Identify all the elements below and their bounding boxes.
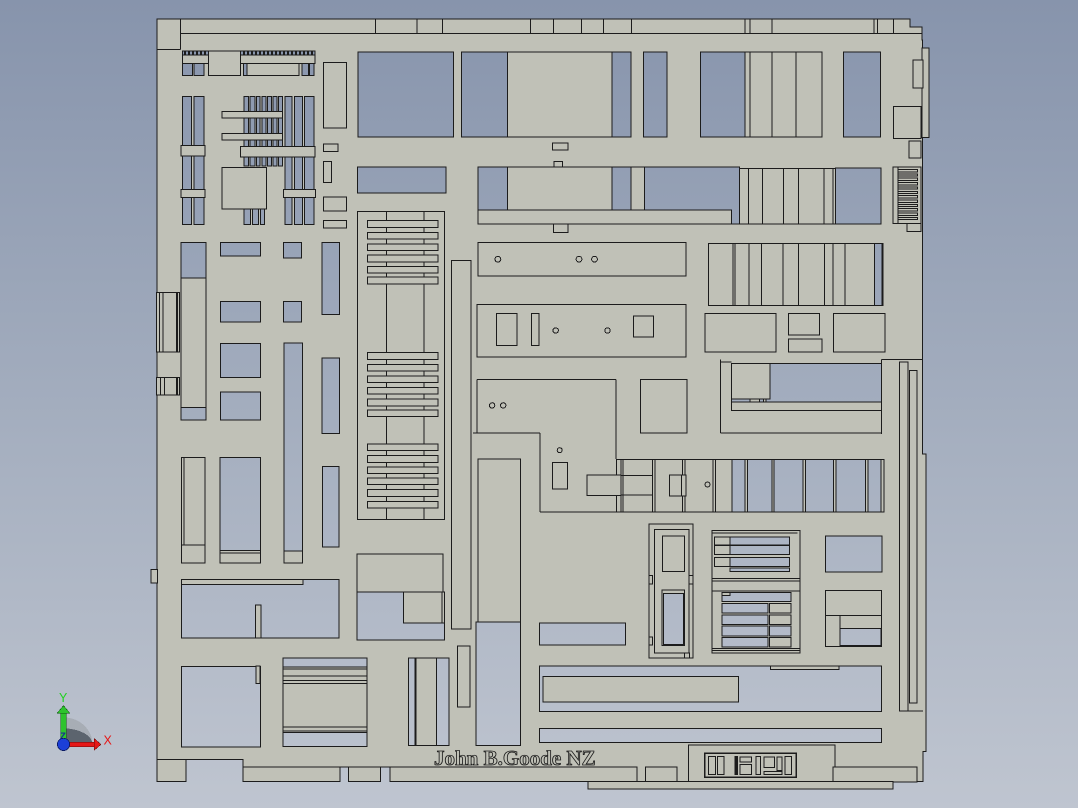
svg-text:John B.Goode NZ: John B.Goode NZ — [434, 746, 596, 770]
svg-text:Y: Y — [59, 691, 68, 705]
svg-text:X: X — [104, 734, 113, 748]
